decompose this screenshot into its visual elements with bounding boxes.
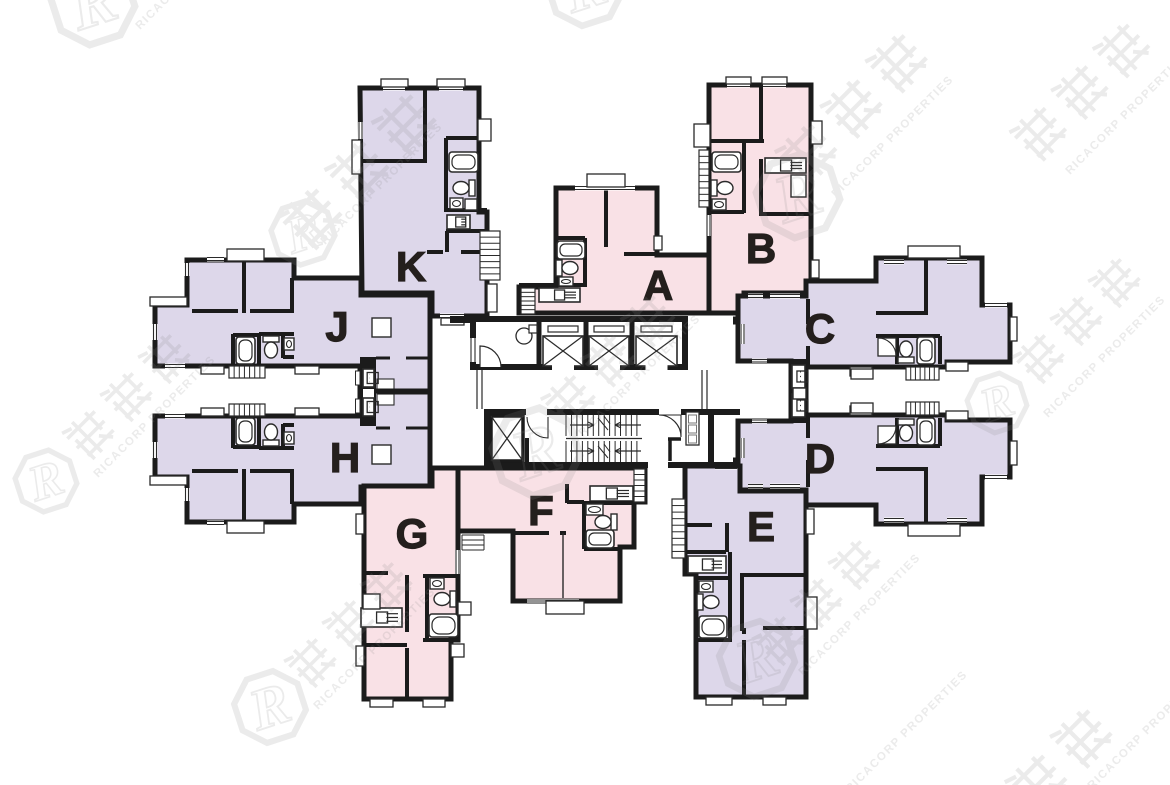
svg-text:D: D bbox=[805, 435, 835, 482]
svg-text:H: H bbox=[330, 434, 360, 481]
svg-text:J: J bbox=[325, 303, 348, 350]
svg-text:G: G bbox=[396, 510, 429, 557]
svg-text:E: E bbox=[747, 503, 775, 550]
svg-text:K: K bbox=[396, 243, 426, 290]
svg-text:B: B bbox=[746, 225, 776, 272]
svg-text:C: C bbox=[805, 305, 835, 352]
